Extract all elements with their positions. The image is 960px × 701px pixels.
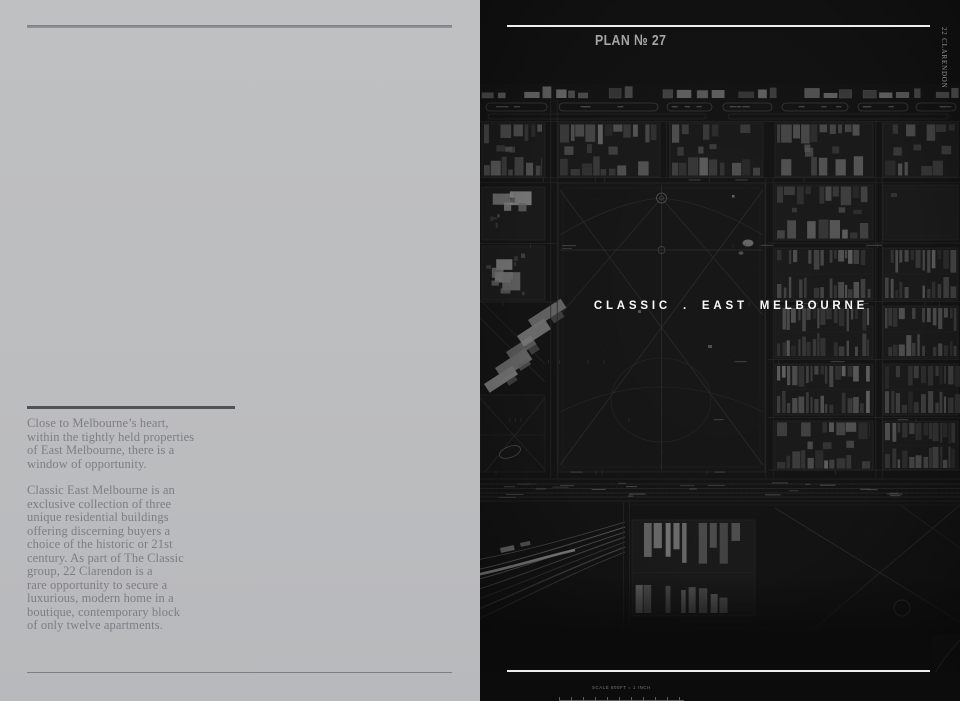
scale-bar: SCALE 800FT = 1 INCH <box>546 679 696 701</box>
paragraph-rule <box>27 406 235 409</box>
right-page: PLAN № 27 CLASSIC . EAST MELBOURNE 22 CL… <box>480 0 960 701</box>
scale-ruler <box>559 697 684 701</box>
top-white-rule <box>507 25 930 27</box>
map-title: CLASSIC . EAST MELBOURNE <box>480 300 960 312</box>
intro-paragraph: Close to Melbourne’s heart, within the t… <box>27 417 239 471</box>
bottom-white-rule <box>507 670 930 672</box>
melbourne-plan-map <box>480 0 960 701</box>
intro-text-block: Close to Melbourne’s heart, within the t… <box>27 406 239 633</box>
brochure-spread: Close to Melbourne’s heart, within the t… <box>0 0 960 701</box>
left-page: Close to Melbourne’s heart, within the t… <box>0 0 480 701</box>
top-rule <box>27 25 452 28</box>
body-paragraph: Classic East Melbourne is an exclusive c… <box>27 484 239 633</box>
scale-label: SCALE 800FT = 1 INCH <box>592 685 651 690</box>
spine-label: 22 CLARENDON <box>940 27 948 89</box>
plan-number-label: PLAN № 27 <box>595 33 666 48</box>
bottom-rule <box>27 672 452 673</box>
